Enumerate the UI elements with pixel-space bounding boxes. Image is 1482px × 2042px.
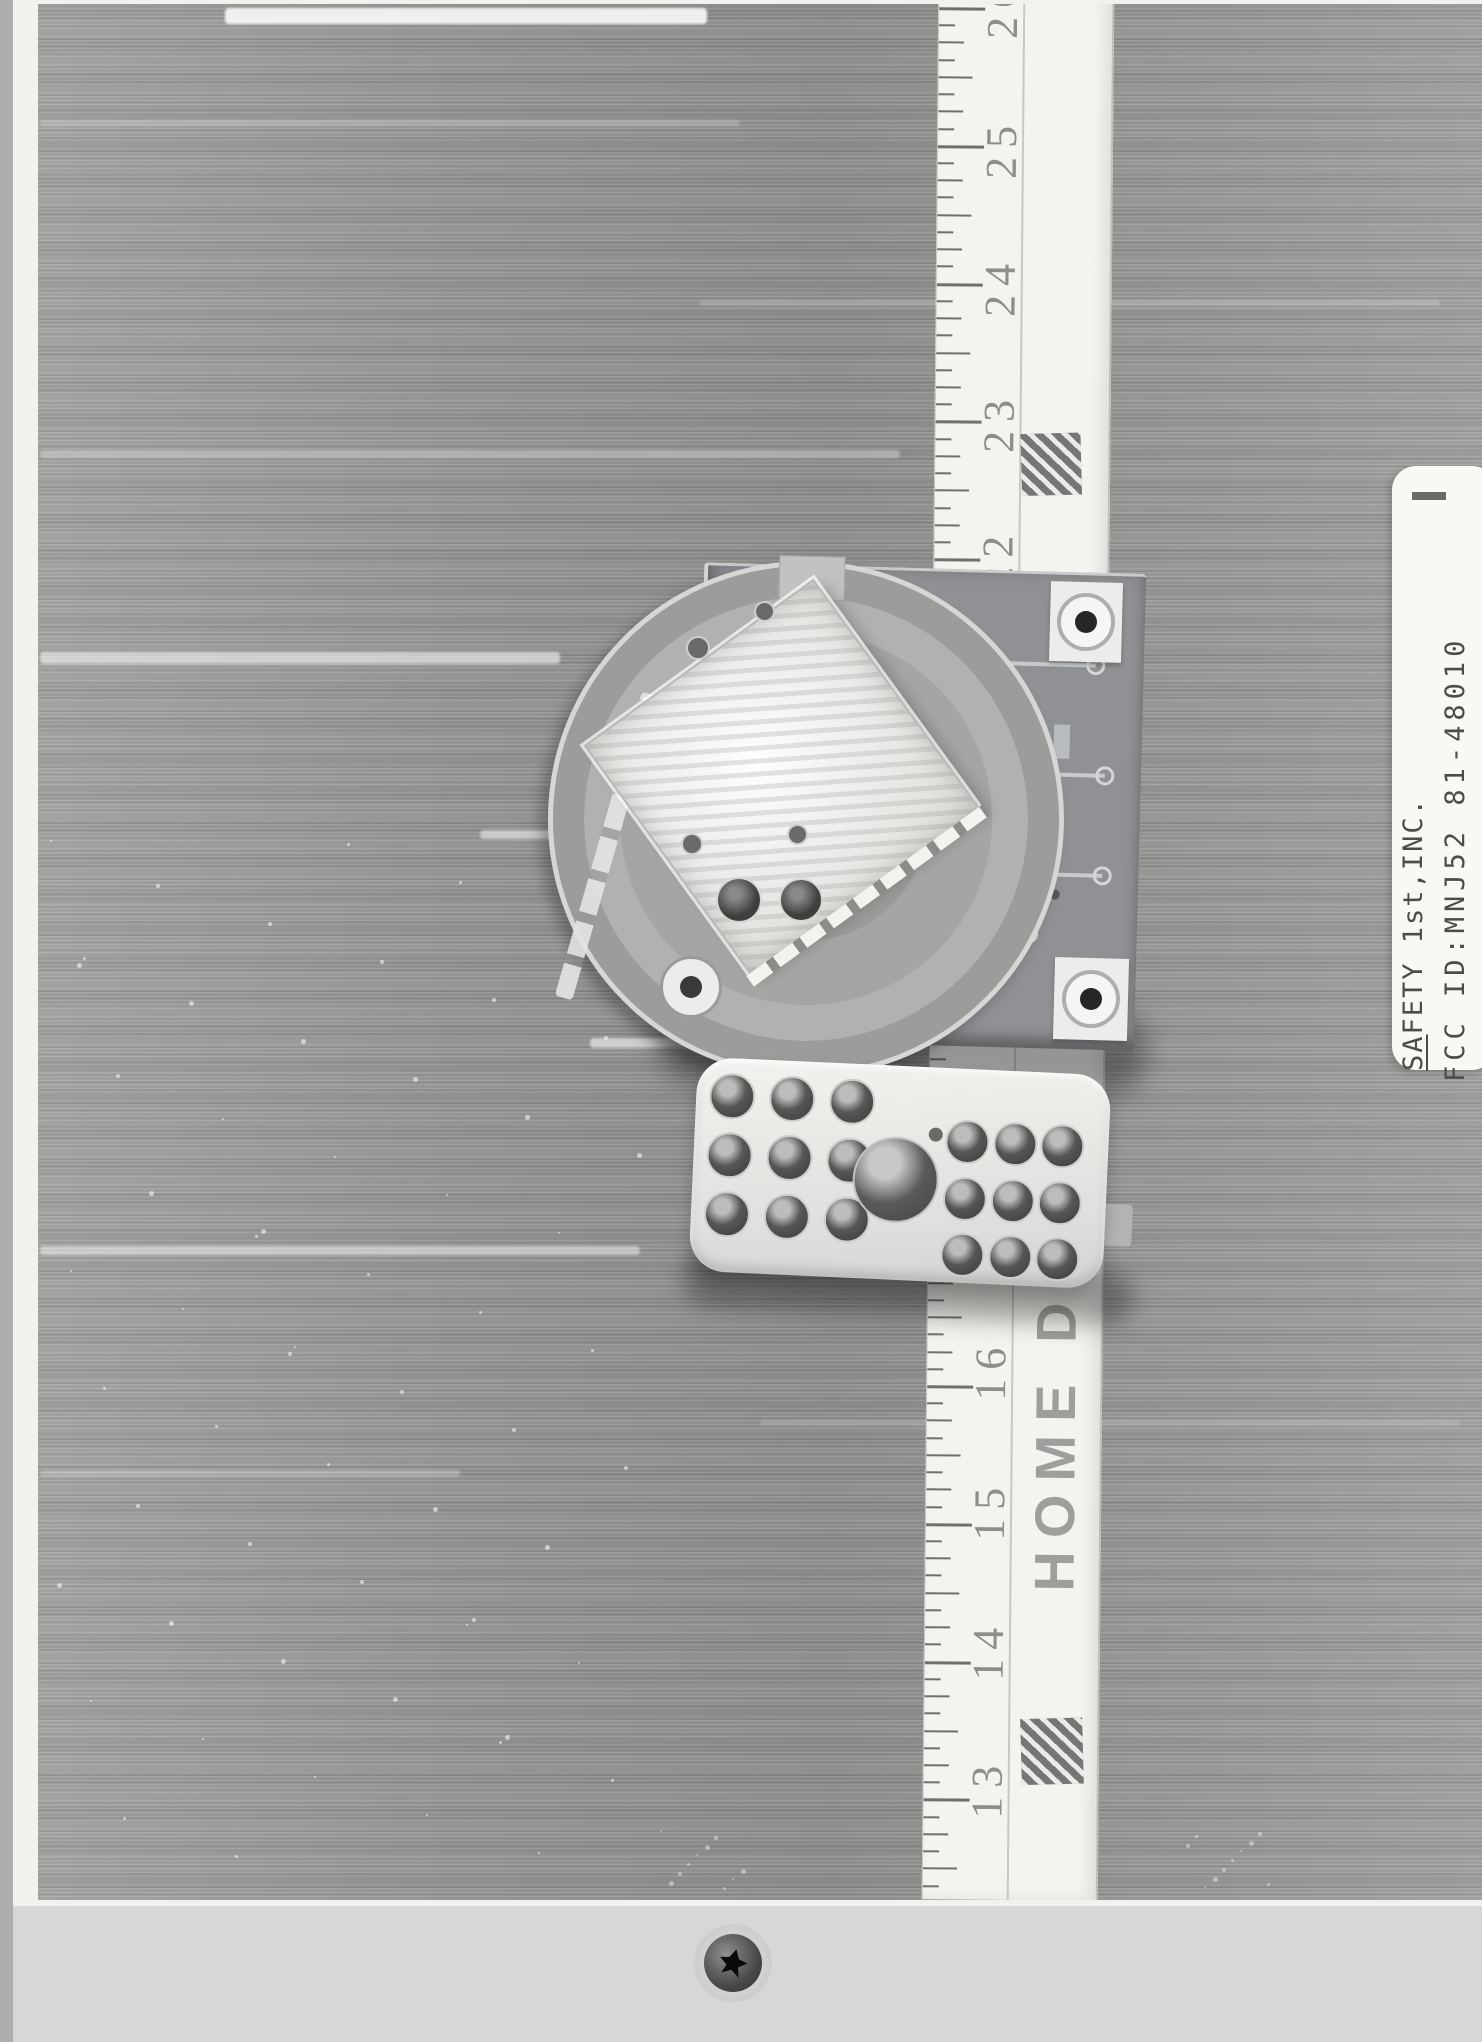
speaker-hole-icon [1037, 1180, 1083, 1226]
ruler-tick [923, 1868, 957, 1870]
pcb-mounting-tab [1049, 581, 1123, 663]
carpet-speckle [327, 1463, 330, 1466]
ruler-tick [926, 1506, 942, 1508]
ruler-tick [938, 162, 954, 164]
ruler-tick [937, 231, 953, 233]
speaker-hole-icon [1034, 1236, 1080, 1282]
mounting-hole-icon [660, 956, 722, 1018]
shield-hole-icon [681, 833, 703, 855]
carpet-speckle [678, 1872, 682, 1876]
carpet-speckle [499, 1741, 502, 1744]
ruler-tick [927, 1402, 943, 1404]
ruler-tick [935, 455, 960, 457]
carpet-speckle [604, 1036, 608, 1040]
scan-streak [40, 450, 900, 458]
ruler-tick [936, 386, 961, 388]
shield-hole-icon [686, 636, 710, 660]
ruler-tick [927, 1351, 952, 1353]
ruler-tick [926, 1557, 951, 1559]
ruler-tick [923, 1816, 939, 1818]
binding-screw [694, 1924, 772, 2002]
carpet-speckle [248, 1542, 252, 1546]
ruler-tick [939, 59, 955, 61]
ruler-tick [935, 524, 960, 526]
label-fcc-id-line: FCC ID:MNJ52 81-48010 [1440, 562, 1472, 1082]
carpet-speckle [189, 1001, 194, 1006]
ruler-tick [939, 24, 955, 26]
ruler-tick [939, 76, 973, 78]
speaker-hole-icon [828, 1078, 876, 1126]
ruler-tick [935, 438, 951, 440]
carpet-speckle [83, 957, 86, 960]
carpet-speckle [261, 1229, 266, 1234]
ruler-tick [937, 266, 953, 268]
carpet-speckle [288, 1352, 292, 1356]
carpet-speckle [741, 1869, 746, 1874]
carpet-speckle [334, 1156, 336, 1158]
ruler-tick [925, 1592, 959, 1594]
speaker-hole-icon [766, 1134, 814, 1182]
carpet-speckle [215, 1425, 218, 1428]
ruler-tick [925, 1609, 941, 1611]
ruler-tick [936, 369, 952, 371]
ruler-tick [938, 197, 954, 199]
speaker-hole-icon [703, 1190, 751, 1238]
speaker-hole-icon [944, 1119, 990, 1165]
label-dash [1412, 492, 1446, 500]
carpet-speckle [426, 1814, 428, 1816]
carpet-speckle [57, 1583, 62, 1588]
carpet-speckle [169, 1621, 174, 1626]
carpet-speckle [1249, 1841, 1254, 1846]
speaker-hole-icon [708, 1072, 756, 1120]
carpet-speckle [1258, 1832, 1262, 1836]
mounting-hole-icon [1056, 592, 1115, 651]
carpet-speckle [479, 1311, 482, 1314]
monitor-faceplate [688, 1057, 1111, 1290]
ruler-inch-number: 15 [965, 1465, 1016, 1555]
carpet-speckle [255, 1235, 258, 1238]
ruler-tick [927, 1368, 943, 1370]
ruler-tick [935, 507, 951, 509]
phillips-cross-icon [716, 1946, 750, 1980]
carpet-speckle [624, 1466, 628, 1470]
carpet-speckle [347, 843, 350, 846]
shield-hole-icon [716, 877, 762, 923]
carpet-speckle [235, 1855, 238, 1858]
carpet-speckle [393, 1697, 398, 1702]
shield-hole-icon [754, 601, 775, 622]
ruler-tick [925, 1626, 950, 1628]
carpet-speckle [505, 1735, 510, 1740]
ruler-tick [924, 1695, 949, 1697]
carpet-speckle [1186, 1844, 1190, 1848]
carpet-speckle [156, 884, 160, 888]
carpet-speckle [294, 1346, 296, 1348]
home-depot-logo-icon [1020, 432, 1082, 496]
carpet-speckle [1222, 1868, 1226, 1872]
speaker-hole-icon [706, 1131, 754, 1179]
carpet-speckle [578, 1662, 580, 1664]
carpet-speckle [545, 1545, 550, 1550]
carpet-speckle [116, 1074, 120, 1078]
ruler-tick [924, 1781, 940, 1783]
ruler-tick [937, 300, 953, 302]
ruler-tick [923, 1885, 939, 1887]
carpet-speckle [538, 1852, 540, 1854]
carpet-speckle [446, 1194, 448, 1196]
pcb-mounting-tab [1053, 957, 1129, 1041]
carpet-speckle [70, 1270, 72, 1272]
mic-hole-icon [928, 1127, 943, 1142]
scan-edge-strip [0, 0, 13, 2042]
carpet-speckle [466, 1624, 468, 1626]
ruler-tick [926, 1489, 951, 1491]
ruler-tick [927, 1420, 952, 1422]
carpet-speckle [380, 960, 384, 964]
label-company-line: SAFETY 1st,INC. [1398, 771, 1430, 1071]
fcc-id-label: SAFETY 1st,INC. FCC ID:MNJ52 81-48010 [1392, 466, 1482, 1070]
carpet-speckle [136, 1504, 140, 1508]
ruler-inch-number: 16 [966, 1325, 1017, 1415]
speaker-hole-icon [987, 1234, 1033, 1280]
carpet-speckle [687, 1863, 690, 1866]
carpet-speckle [512, 1428, 516, 1432]
ruler-tick [937, 214, 971, 216]
home-depot-logo-icon [1020, 1718, 1084, 1786]
ruler-tick [923, 1833, 948, 1835]
carpet-speckle [90, 1700, 92, 1702]
speaker-hole-icon [1039, 1123, 1085, 1169]
carpet-speckle [50, 840, 52, 842]
speaker-hole-icon [763, 1193, 811, 1241]
carpet-speckle [611, 1779, 614, 1782]
carpet-speckle [281, 1659, 286, 1664]
carpet-speckle [1213, 1877, 1218, 1882]
carpet-speckle [558, 1232, 560, 1234]
carpet-speckle [714, 1836, 718, 1840]
speaker-hole-icon [939, 1232, 985, 1278]
ruler-tick [925, 1644, 941, 1646]
carpet-speckle [637, 1153, 642, 1158]
carpet-speckle [669, 1881, 674, 1886]
ruler-inch-number: 25 [977, 103, 1028, 193]
carpet-speckle [182, 1308, 184, 1310]
ruler-tick [938, 111, 963, 113]
ruler-tick [926, 1471, 942, 1473]
ruler-tick [924, 1747, 940, 1749]
scanned-page: 262524232216151413 HOME DE [0, 0, 1482, 2042]
carpet-speckle [1204, 1886, 1206, 1888]
ruler-tick [935, 541, 951, 543]
ruler-tick [939, 42, 964, 44]
ruler-tick [923, 1850, 939, 1852]
carpet-speckle [367, 1273, 370, 1276]
ruler-tick [938, 128, 954, 130]
carpet-speckle [413, 1077, 418, 1082]
carpet-speckle [492, 998, 496, 1002]
carpet-speckle [123, 1817, 126, 1820]
speaker-hole-icon [942, 1176, 988, 1222]
shield-hole-icon [787, 824, 808, 845]
scan-streak [40, 120, 740, 126]
phillips-screw-head-icon [704, 1934, 762, 1992]
label-company-underlined: SA [1398, 1034, 1429, 1071]
carpet-speckle [360, 1580, 364, 1584]
scan-streak [40, 652, 560, 664]
carpet-speckle [400, 1390, 404, 1394]
ruler-tick [938, 180, 963, 182]
carpet-speckle [472, 1618, 476, 1622]
scan-streak [40, 1470, 460, 1477]
ruler-tick [927, 1454, 961, 1456]
scan-streak [40, 1246, 640, 1255]
ruler-tick [924, 1764, 949, 1766]
ruler-tick [925, 1678, 941, 1680]
ruler-tick [936, 352, 970, 354]
carpet-speckle [660, 1830, 662, 1832]
ruler-tick [935, 490, 969, 492]
ruler-tick [926, 1540, 942, 1542]
speaker-hole-icon [990, 1178, 1036, 1224]
carpet-speckle [525, 1115, 530, 1120]
ruler-tick [926, 1575, 942, 1577]
carpet-speckle [705, 1845, 710, 1850]
ruler-tick [924, 1730, 958, 1732]
carpet-speckle [149, 1191, 154, 1196]
speaker-hole-icon [992, 1121, 1038, 1167]
carpet-speckle [301, 1039, 306, 1044]
carpet-speckle [1231, 1859, 1234, 1862]
carpet-speckle [1240, 1850, 1242, 1852]
ruler-inch-number: 26 [978, 4, 1029, 53]
ruler-tick [924, 1712, 940, 1714]
ruler-inch-number: 13 [962, 1743, 1013, 1833]
carpet-speckle [732, 1878, 734, 1880]
carpet-speckle [103, 1387, 106, 1390]
carpet-speckle [1195, 1835, 1198, 1838]
carpet-speckle [459, 881, 462, 884]
mounting-hole-icon [1061, 969, 1120, 1028]
ruler-inch-number: 14 [963, 1605, 1014, 1695]
ruler-tick [935, 472, 951, 474]
ruler-inch-number: 24 [975, 241, 1026, 331]
carpet-speckle [77, 963, 82, 968]
scan-streak [760, 1420, 1460, 1426]
ruler-tick [927, 1437, 943, 1439]
carpet-speckle [268, 922, 272, 926]
carpet-speckle [314, 1776, 316, 1778]
scan-streak [225, 8, 707, 24]
ruler-tick [928, 1334, 944, 1336]
ruler-tick [937, 248, 962, 250]
speaker-hole-icon [768, 1075, 816, 1123]
carpet-speckle [696, 1854, 698, 1856]
carpet-speckle [591, 1349, 594, 1352]
shield-hole-icon [779, 878, 823, 922]
ruler-tick [936, 335, 952, 337]
photograph-carpet-background: 262524232216151413 HOME DE [38, 4, 1482, 1900]
label-company-rest: FETY 1st,INC. [1398, 797, 1429, 1034]
ruler-inch-number: 23 [974, 377, 1025, 467]
ruler-tick [936, 403, 952, 405]
carpet-speckle [202, 1738, 204, 1740]
carpet-speckle [222, 1118, 224, 1120]
carpet-speckle [433, 1507, 438, 1512]
ruler-tick [936, 317, 961, 319]
ruler-tick [938, 93, 954, 95]
carpet-speckle [1267, 1883, 1270, 1886]
carpet-speckle [723, 1887, 726, 1890]
